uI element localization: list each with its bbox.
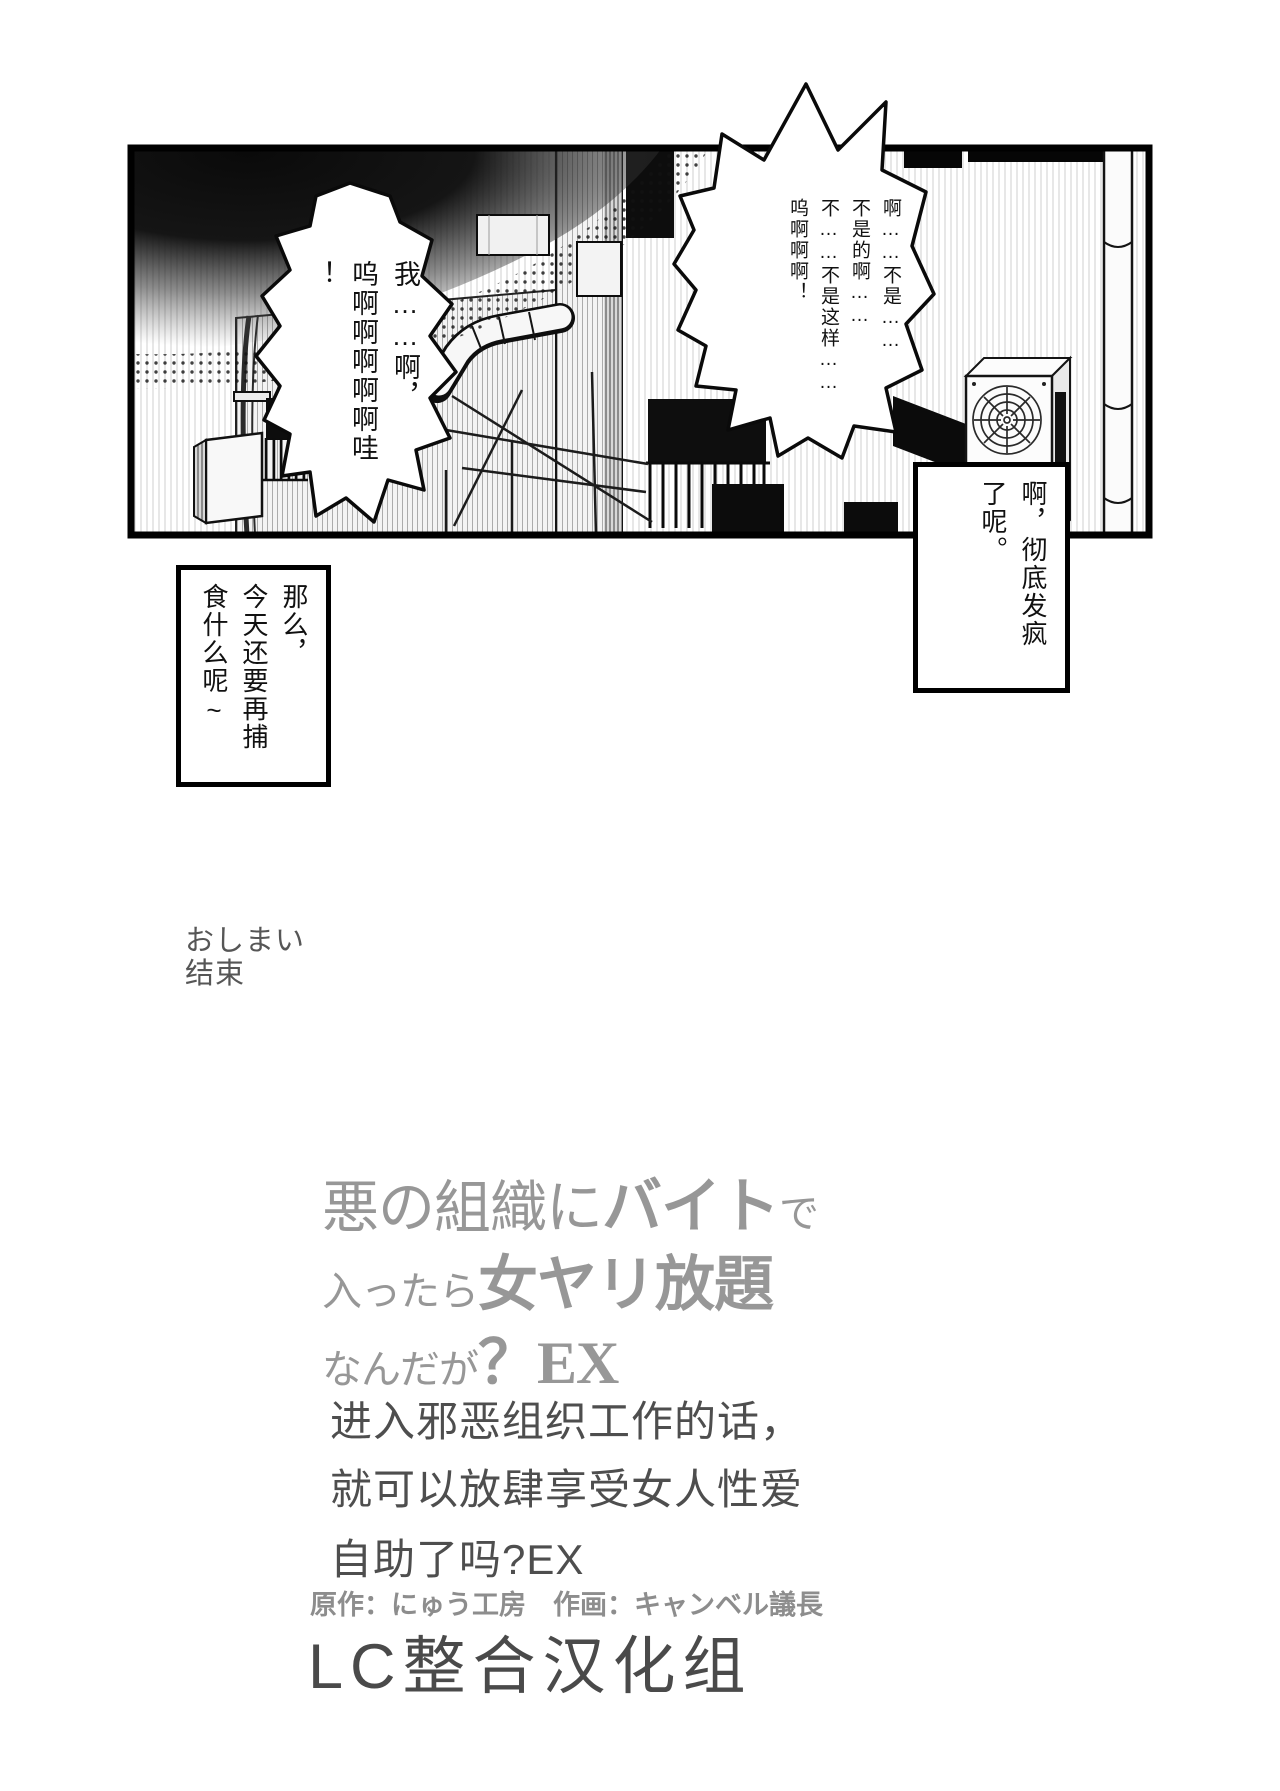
- caption-right-text: 啊，彻底发疯 了呢。: [926, 480, 1053, 678]
- scanlation-group: LC整合汉化组: [308, 1616, 753, 1707]
- title-jp-segment: 女ヤリ放題: [478, 1252, 773, 1318]
- pillar-box: [577, 242, 621, 296]
- title-jp-segment: 入ったら: [322, 1269, 478, 1314]
- caption-left-text: 那么， 今天还要再捕 食什么呢~: [189, 583, 314, 772]
- speech-bubble-right-text: 啊……不是…… 不是的啊…… 不……不是这样…… 呜啊啊啊！: [780, 198, 906, 430]
- wall-sign: [477, 215, 549, 255]
- title-jp-line-2: 入ったら女ヤリ放題: [322, 1236, 773, 1323]
- caption-box-left: 那么， 今天还要再捕 食什么呢~: [176, 565, 331, 787]
- title-jp-segment: バイト: [602, 1174, 779, 1240]
- title-jp-segment: ？EX: [478, 1330, 618, 1396]
- window-bottom-2: [844, 502, 898, 534]
- title-jp-segment: で: [779, 1191, 818, 1236]
- window-bottom-1: [712, 484, 784, 534]
- title-cn-line-3: 自助了吗?EX: [330, 1526, 584, 1587]
- manga-page: 啊……不是…… 不是的啊…… 不……不是这样…… 呜啊啊啊！ 我……啊， 呜啊啊…: [0, 0, 1280, 1791]
- title-jp-segment: なんだが: [322, 1347, 478, 1392]
- end-note-jp: おしまい: [185, 925, 305, 958]
- right-pipe: [1104, 148, 1132, 535]
- speech-bubble-left-text: 我……啊， 呜啊啊啊啊啊哇 ！: [300, 260, 426, 502]
- caption-box-right: 啊，彻底发疯 了呢。: [913, 462, 1070, 693]
- title-cn-line-1: 进入邪恶组织工作的话，: [330, 1388, 803, 1449]
- end-note: おしまい 结束: [185, 925, 305, 991]
- title-jp-segment: 悪の組織に: [322, 1177, 602, 1240]
- balcony-box: [206, 433, 262, 523]
- end-note-cn: 结束: [185, 958, 305, 991]
- title-cn-line-2: 就可以放肆享受女人性爱: [330, 1456, 803, 1517]
- panel-artwork: [0, 0, 1280, 1791]
- title-jp-line-1: 悪の組織にバイトで: [322, 1158, 818, 1245]
